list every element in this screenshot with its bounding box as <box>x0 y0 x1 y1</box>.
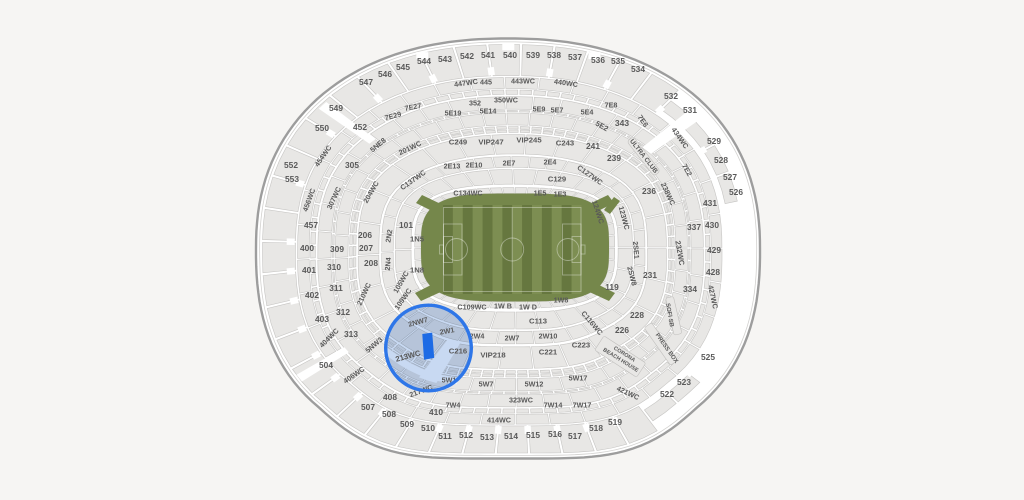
svg-text:C221: C221 <box>539 348 558 357</box>
svg-text:1N8: 1N8 <box>410 266 425 275</box>
svg-text:311: 311 <box>329 283 343 293</box>
svg-text:402: 402 <box>305 290 319 300</box>
svg-text:515: 515 <box>526 430 540 440</box>
svg-text:542: 542 <box>460 51 474 61</box>
svg-text:228: 228 <box>630 310 644 320</box>
svg-text:323WC: 323WC <box>509 395 533 404</box>
svg-text:5W12: 5W12 <box>525 379 544 388</box>
svg-text:523: 523 <box>677 377 691 387</box>
svg-text:310: 310 <box>327 262 341 272</box>
svg-text:226: 226 <box>615 325 629 335</box>
svg-text:543: 543 <box>438 54 452 64</box>
svg-text:343: 343 <box>615 118 629 128</box>
svg-text:1E3: 1E3 <box>554 189 567 198</box>
svg-text:241: 241 <box>586 141 600 151</box>
svg-text:540: 540 <box>503 50 517 60</box>
svg-text:511: 511 <box>438 431 452 441</box>
svg-text:544: 544 <box>417 56 431 66</box>
svg-text:508: 508 <box>382 409 396 419</box>
svg-text:452: 452 <box>353 122 367 132</box>
svg-text:1W B: 1W B <box>494 301 512 310</box>
svg-text:535: 535 <box>611 56 625 66</box>
svg-text:2E13: 2E13 <box>444 161 461 170</box>
svg-text:206: 206 <box>358 230 372 240</box>
svg-text:2E10: 2E10 <box>466 160 483 169</box>
svg-text:305: 305 <box>345 160 359 170</box>
svg-text:517: 517 <box>568 431 582 441</box>
svg-text:522: 522 <box>660 389 674 399</box>
svg-text:VIP245: VIP245 <box>516 136 542 145</box>
svg-text:2W7: 2W7 <box>505 333 520 342</box>
svg-text:352: 352 <box>469 98 481 107</box>
svg-text:443WC: 443WC <box>511 76 535 85</box>
svg-text:552: 552 <box>284 160 298 170</box>
svg-text:309: 309 <box>330 244 344 254</box>
svg-text:414WC: 414WC <box>487 415 511 424</box>
svg-text:430: 430 <box>705 220 719 230</box>
svg-text:337: 337 <box>687 222 701 232</box>
svg-text:2W10: 2W10 <box>539 331 558 340</box>
svg-text:431: 431 <box>703 198 717 208</box>
svg-text:239: 239 <box>607 153 621 163</box>
svg-text:507: 507 <box>361 402 375 412</box>
svg-text:C249: C249 <box>449 138 467 147</box>
svg-text:400: 400 <box>300 243 314 253</box>
svg-text:546: 546 <box>378 69 392 79</box>
svg-text:410: 410 <box>429 407 443 417</box>
svg-text:1W D: 1W D <box>519 302 537 311</box>
svg-text:539: 539 <box>526 50 540 60</box>
svg-text:5E9: 5E9 <box>533 104 546 113</box>
svg-text:553: 553 <box>285 174 299 184</box>
svg-text:101: 101 <box>399 220 413 230</box>
svg-text:5W7: 5W7 <box>479 379 494 388</box>
svg-text:5E7: 5E7 <box>551 105 564 114</box>
svg-text:VIP247: VIP247 <box>478 138 503 147</box>
svg-text:457: 457 <box>304 220 318 230</box>
svg-text:538: 538 <box>547 50 561 60</box>
svg-text:526: 526 <box>729 187 743 197</box>
svg-text:1W8: 1W8 <box>554 295 569 304</box>
svg-text:504: 504 <box>319 360 333 370</box>
svg-text:513: 513 <box>480 432 494 442</box>
svg-text:528: 528 <box>714 155 728 165</box>
svg-text:510: 510 <box>421 423 435 433</box>
svg-text:C243: C243 <box>556 139 574 148</box>
svg-text:518: 518 <box>589 423 603 433</box>
svg-text:509: 509 <box>400 419 414 429</box>
svg-text:2E4: 2E4 <box>544 157 557 166</box>
svg-text:231: 231 <box>643 270 657 280</box>
svg-text:1N5: 1N5 <box>410 235 425 244</box>
svg-text:5E19: 5E19 <box>445 108 462 117</box>
svg-text:516: 516 <box>548 429 562 439</box>
svg-text:429: 429 <box>707 245 721 255</box>
svg-text:529: 529 <box>707 136 721 146</box>
svg-text:5W17: 5W17 <box>569 373 588 382</box>
svg-text:7E8: 7E8 <box>605 100 618 109</box>
svg-text:532: 532 <box>664 91 678 101</box>
svg-text:2N4: 2N4 <box>383 257 393 271</box>
svg-text:514: 514 <box>504 431 518 441</box>
svg-text:550: 550 <box>315 123 329 133</box>
svg-text:VIP218: VIP218 <box>480 351 506 360</box>
svg-text:5E4: 5E4 <box>581 107 594 116</box>
svg-text:7W14: 7W14 <box>544 400 563 409</box>
svg-text:236: 236 <box>642 186 656 196</box>
svg-text:C113: C113 <box>529 317 547 326</box>
svg-text:313: 313 <box>344 329 358 339</box>
svg-text:207: 207 <box>359 243 373 253</box>
svg-text:549: 549 <box>329 103 343 113</box>
svg-text:445: 445 <box>480 77 492 86</box>
svg-text:C216: C216 <box>449 347 467 356</box>
svg-text:2SE1: 2SE1 <box>631 241 641 259</box>
svg-text:C109WC: C109WC <box>457 302 486 311</box>
svg-text:1E5: 1E5 <box>534 188 547 197</box>
svg-text:7W17: 7W17 <box>573 400 592 409</box>
svg-text:428: 428 <box>706 267 720 277</box>
svg-text:2E7: 2E7 <box>503 158 516 167</box>
svg-text:531: 531 <box>683 105 697 115</box>
svg-text:525: 525 <box>701 352 715 362</box>
svg-text:537: 537 <box>568 52 582 62</box>
svg-text:119: 119 <box>605 282 619 292</box>
svg-text:7W4: 7W4 <box>446 400 461 409</box>
svg-text:408: 408 <box>383 392 397 402</box>
svg-text:545: 545 <box>396 62 410 72</box>
svg-text:541: 541 <box>481 50 495 60</box>
svg-text:208: 208 <box>364 258 378 268</box>
svg-text:403: 403 <box>315 314 329 324</box>
svg-text:534: 534 <box>631 64 645 74</box>
svg-text:536: 536 <box>591 55 605 65</box>
svg-text:312: 312 <box>336 307 350 317</box>
svg-text:519: 519 <box>608 417 622 427</box>
svg-text:C134WC: C134WC <box>453 188 482 197</box>
svg-text:350WC: 350WC <box>494 95 518 104</box>
svg-text:334: 334 <box>683 284 697 294</box>
svg-text:401: 401 <box>302 265 316 275</box>
svg-text:5E14: 5E14 <box>480 106 497 115</box>
svg-text:C129: C129 <box>548 175 566 184</box>
svg-text:527: 527 <box>723 172 737 182</box>
svg-text:547: 547 <box>359 77 373 87</box>
svg-text:C223: C223 <box>572 341 590 350</box>
svg-text:512: 512 <box>459 430 473 440</box>
